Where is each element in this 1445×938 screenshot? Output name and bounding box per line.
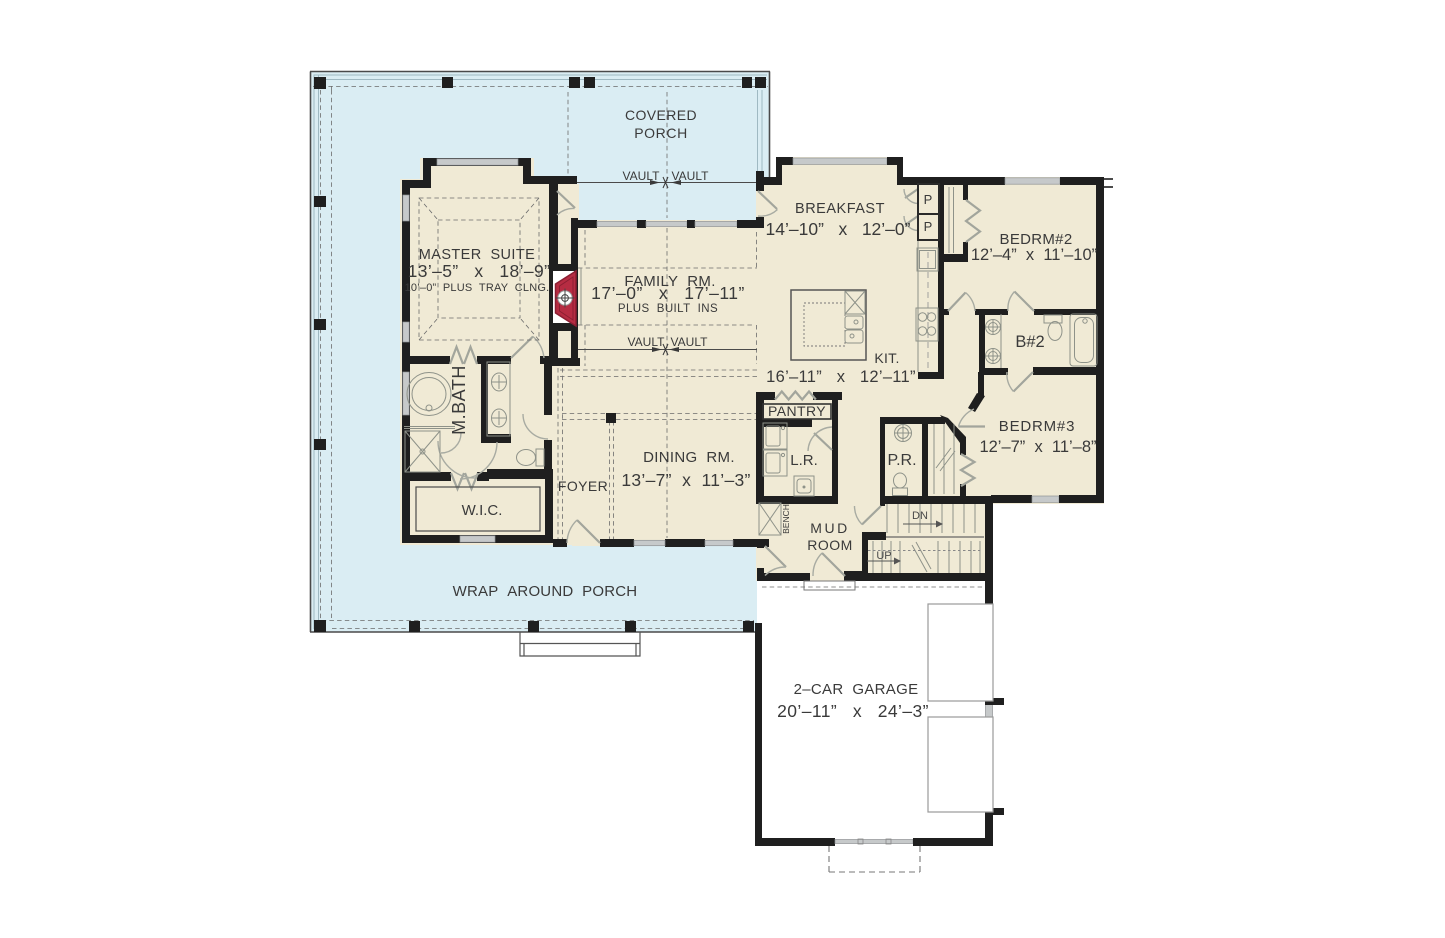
svg-text:P: P	[924, 219, 933, 234]
svg-text:P: P	[924, 192, 933, 207]
svg-text:DN: DN	[912, 510, 928, 522]
svg-text:16’–11” x 12’–11”: 16’–11” x 12’–11”	[766, 368, 916, 386]
svg-text:ROOM: ROOM	[807, 537, 853, 553]
svg-text:WRAP AROUND PORCH: WRAP AROUND PORCH	[453, 583, 638, 600]
svg-text:PANTRY: PANTRY	[768, 403, 826, 419]
svg-text:20’–11” x 24’–3”: 20’–11” x 24’–3”	[777, 701, 929, 721]
svg-text:17’–0” x 17’–11”: 17’–0” x 17’–11”	[591, 283, 745, 303]
svg-text:VAULT: VAULT	[623, 169, 661, 183]
svg-text:14’–10” x 12’–0”: 14’–10” x 12’–0”	[766, 219, 911, 239]
svg-text:P.R.: P.R.	[887, 452, 916, 469]
svg-text:KIT.: KIT.	[874, 350, 899, 366]
svg-text:L.R.: L.R.	[790, 452, 818, 469]
svg-text:BREAKFAST: BREAKFAST	[795, 201, 885, 217]
svg-text:10’–0” PLUS TRAY CLNG.: 10’–0” PLUS TRAY CLNG.	[405, 282, 550, 294]
svg-text:12’–7” x 11’–8”: 12’–7” x 11’–8”	[979, 438, 1096, 456]
svg-text:DINING RM.: DINING RM.	[643, 449, 735, 466]
svg-text:FOYER: FOYER	[558, 478, 608, 494]
svg-text:UP: UP	[876, 550, 891, 562]
svg-text:MUD: MUD	[810, 520, 849, 536]
svg-text:BENCH: BENCH	[781, 504, 791, 534]
svg-text:VAULT: VAULT	[671, 335, 709, 349]
svg-text:COVERED: COVERED	[625, 107, 697, 123]
svg-text:13’–5” x 18’–9”: 13’–5” x 18’–9”	[408, 261, 551, 281]
svg-text:12’–4” x 11’–10”: 12’–4” x 11’–10”	[971, 246, 1097, 264]
svg-text:BEDRM#3: BEDRM#3	[999, 418, 1075, 435]
svg-text:PORCH: PORCH	[634, 125, 688, 141]
svg-text:B#2: B#2	[1015, 333, 1044, 351]
svg-text:M.BATH: M.BATH	[449, 365, 469, 435]
svg-text:2–CAR GARAGE: 2–CAR GARAGE	[794, 681, 919, 698]
svg-text:VAULT: VAULT	[672, 169, 710, 183]
svg-text:PLUS BUILT INS: PLUS BUILT INS	[618, 303, 718, 315]
svg-text:W.I.C.: W.I.C.	[462, 502, 503, 519]
svg-text:13’–7” x 11’–3”: 13’–7” x 11’–3”	[621, 470, 750, 490]
svg-text:VAULT: VAULT	[628, 335, 666, 349]
